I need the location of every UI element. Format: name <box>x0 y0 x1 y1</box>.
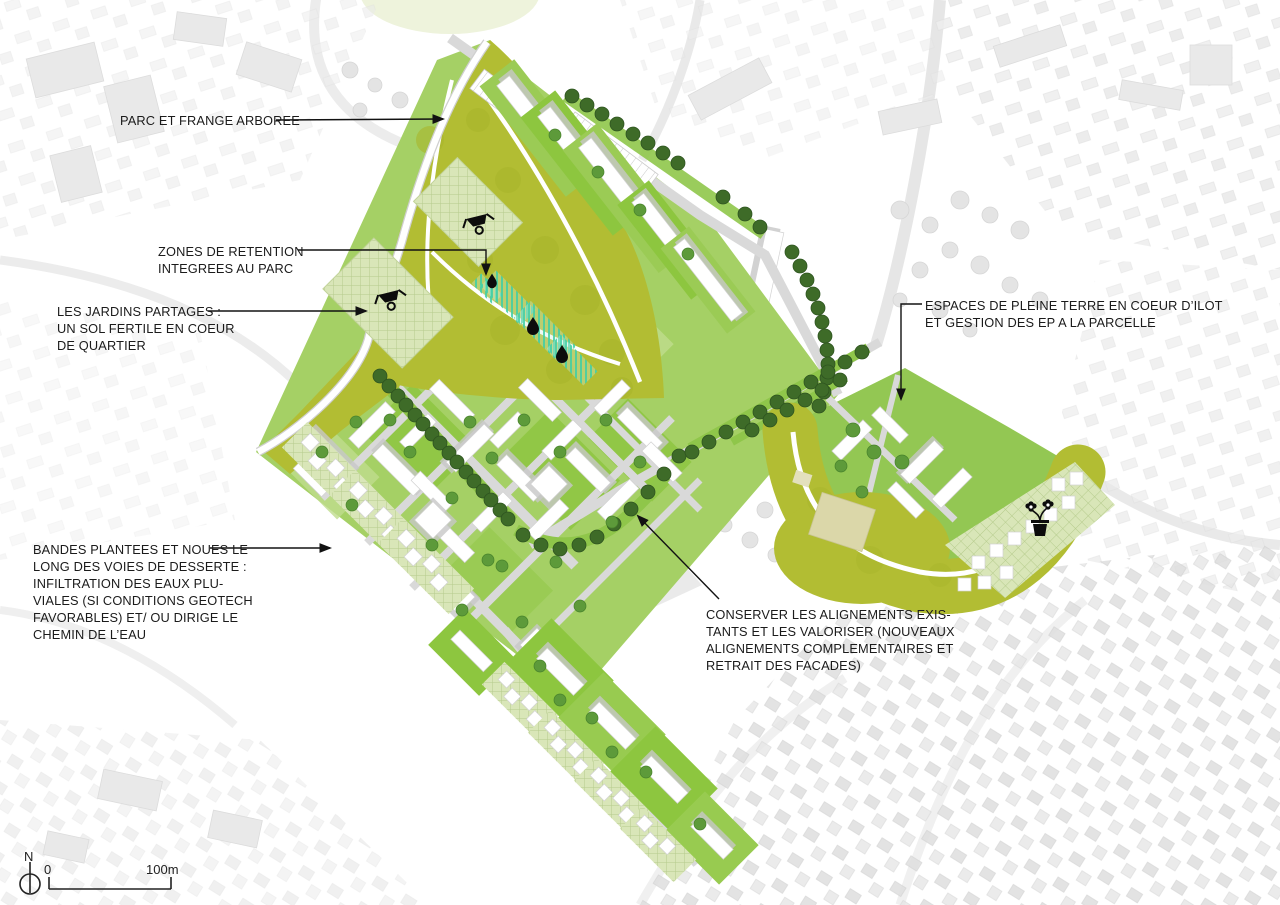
annotation-jardins: LES JARDINS PARTAGES : UN SOL FERTILE EN… <box>57 303 235 354</box>
scale-start-label: 0 <box>44 862 51 877</box>
leader-parc <box>276 119 443 120</box>
annotation-bandes: BANDES PLANTEES ET NOUES LE LONG DES VOI… <box>33 541 253 643</box>
scale-end-label: 100m <box>146 862 179 877</box>
annotation-alignements: CONSERVER LES ALIGNEMENTS EXIS- TANTS ET… <box>706 606 955 674</box>
annotation-pleine-terre: ESPACES DE PLEINE TERRE EN COEUR D’ILOT … <box>925 297 1223 331</box>
masterplan-drawing <box>0 0 1280 905</box>
north-label: N <box>24 849 33 864</box>
annotation-retention: ZONES DE RETENTION INTEGREES AU PARC <box>158 243 304 277</box>
annotation-parc: PARC ET FRANGE ARBOREE <box>120 112 300 129</box>
masterplan-page: PARC ET FRANGE ARBOREE ZONES DE RETENTIO… <box>0 0 1280 905</box>
